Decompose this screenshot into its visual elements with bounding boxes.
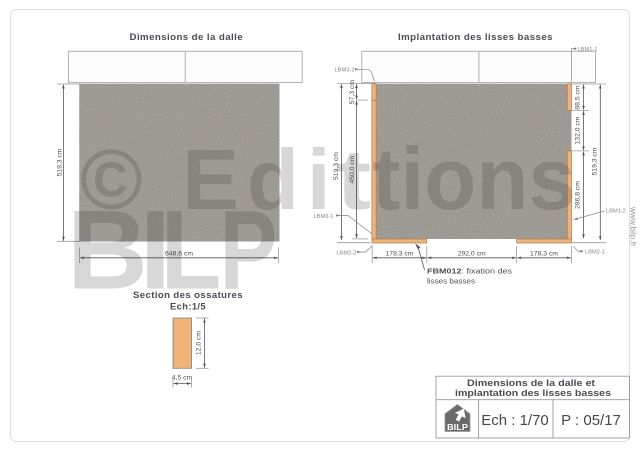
svg-text:178,3 cm: 178,3 cm (530, 250, 558, 257)
svg-text:Implantation des lisses basses: Implantation des lisses basses (398, 32, 553, 43)
svg-text:lisses basses: lisses basses (427, 277, 475, 286)
svg-text:t: t (336, 133, 371, 228)
svg-text:LBM1-1: LBM1-1 (578, 47, 598, 53)
svg-text:Dimensions de la dalle et: Dimensions de la dalle et (467, 378, 595, 388)
svg-text:Ech : 1/70: Ech : 1/70 (481, 412, 549, 429)
svg-text:LBM1-2: LBM1-2 (606, 209, 626, 215)
svg-text:519,3 cm: 519,3 cm (591, 147, 598, 175)
svg-text:292,0 cm: 292,0 cm (458, 250, 486, 257)
svg-text:tions: tions (372, 129, 576, 228)
svg-text:Dimensions de la dalle: Dimensions de la dalle (130, 32, 244, 43)
svg-text:B: B (67, 188, 148, 313)
svg-text:57,3 cm: 57,3 cm (349, 80, 356, 105)
svg-text:88,5 cm: 88,5 cm (575, 85, 582, 110)
svg-text:LBM2-1: LBM2-1 (585, 250, 605, 256)
svg-text:FBM012: fixation des: FBM012: fixation des (427, 267, 512, 276)
svg-text:www.bilp.fr: www.bilp.fr (629, 206, 638, 247)
svg-text:implantation des lisses basses: implantation des lisses basses (455, 388, 611, 398)
svg-text:519,3 cm: 519,3 cm (57, 148, 64, 176)
svg-text:L: L (161, 188, 222, 313)
svg-text:LBM3-2: LBM3-2 (335, 68, 355, 74)
svg-text:P : 05/17: P : 05/17 (561, 412, 621, 429)
svg-text:178,3 cm: 178,3 cm (386, 250, 414, 257)
svg-text:LBM2-2: LBM2-2 (336, 250, 356, 256)
svg-text:P: P (220, 189, 278, 313)
svg-text:4,5 cm: 4,5 cm (172, 375, 193, 382)
svg-text:12,0 cm: 12,0 cm (196, 331, 203, 356)
svg-text:BILP: BILP (447, 422, 468, 432)
